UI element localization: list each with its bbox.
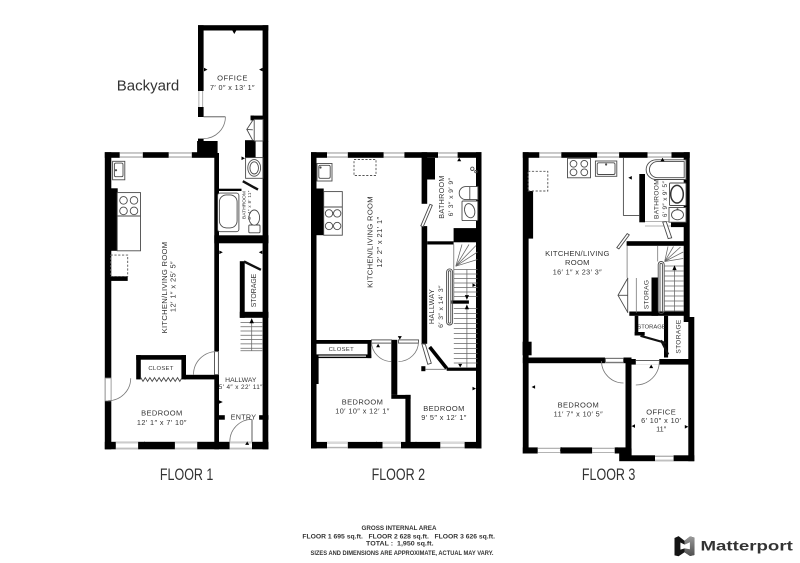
svg-text:SIZES AND DIMENSIONS ARE APPRO: SIZES AND DIMENSIONS ARE APPROXIMATE, AC… [311, 550, 494, 557]
svg-text:FLOOR 1 695 sq.ft. FLOOR 2 6: FLOOR 1 695 sq.ft. FLOOR 2 628 sq.ft. FL… [302, 533, 495, 540]
svg-text:6′ 3″ x 9′ 9″: 6′ 3″ x 9′ 9″ [448, 177, 455, 216]
svg-text:STORAGE: STORAGE [676, 319, 683, 354]
svg-text:TOTAL : 1,950 sq.ft.: TOTAL : 1,950 sq.ft. [366, 541, 434, 548]
svg-text:10′ 10″ x 12′ 1″: 10′ 10″ x 12′ 1″ [335, 406, 389, 415]
svg-text:5′ 4″ x 8′ 11″: 5′ 4″ x 8′ 11″ [247, 190, 252, 219]
svg-text:BEDROOM: BEDROOM [342, 397, 384, 406]
svg-text:12′ 1″ x 7′ 10″: 12′ 1″ x 7′ 10″ [137, 418, 187, 427]
svg-text:Backyard: Backyard [117, 78, 180, 95]
svg-text:HALLWAY: HALLWAY [427, 289, 436, 324]
svg-text:12′ 1″ x 25′ 5″: 12′ 1″ x 25′ 5″ [169, 261, 178, 312]
svg-text:12′ 2″ x 21′ 1″: 12′ 2″ x 21′ 1″ [375, 216, 384, 267]
svg-text:ROOM: ROOM [565, 258, 590, 267]
svg-text:GROSS INTERNAL AREA: GROSS INTERNAL AREA [362, 525, 437, 532]
svg-text:STORAGE: STORAGE [637, 325, 665, 331]
svg-text:BEDROOM: BEDROOM [141, 408, 183, 417]
svg-text:STORAGE: STORAGE [251, 273, 258, 307]
svg-text:Matterport: Matterport [701, 537, 794, 553]
svg-text:BATHROOM: BATHROOM [653, 179, 660, 219]
svg-text:KITCHEN/LIVING ROOM: KITCHEN/LIVING ROOM [160, 242, 169, 334]
svg-text:KITCHEN/LIVING ROOM: KITCHEN/LIVING ROOM [366, 196, 375, 288]
svg-text:CLOSET: CLOSET [329, 347, 354, 353]
svg-text:6′ 3″ x 14′ 3″: 6′ 3″ x 14′ 3″ [438, 285, 445, 328]
svg-text:OFFICE: OFFICE [217, 74, 248, 83]
svg-text:BEDROOM: BEDROOM [423, 404, 465, 413]
svg-text:ENTRY: ENTRY [231, 413, 257, 422]
svg-text:6′ 9″ x 9′ 5″: 6′ 9″ x 9′ 5″ [662, 181, 669, 218]
svg-text:16′ 1″ x 23′ 3″: 16′ 1″ x 23′ 3″ [553, 267, 602, 276]
svg-text:FLOOR 1: FLOOR 1 [160, 466, 214, 484]
svg-text:9′ 5″ x 12′ 1″: 9′ 5″ x 12′ 1″ [421, 413, 467, 422]
svg-text:7′ 0″ x 13′ 1″: 7′ 0″ x 13′ 1″ [210, 83, 255, 92]
svg-text:11′ 7″ x 10′ 5″: 11′ 7″ x 10′ 5″ [554, 410, 603, 419]
svg-text:FLOOR 3: FLOOR 3 [582, 466, 636, 484]
svg-text:BATHROOM: BATHROOM [437, 175, 446, 218]
svg-text:CLOSET: CLOSET [148, 366, 173, 372]
svg-text:KITCHEN/LIVING: KITCHEN/LIVING [545, 249, 610, 258]
svg-text:11″: 11″ [656, 425, 667, 434]
svg-text:STORAG: STORAG [644, 280, 651, 310]
svg-text:5′ 4″ x 22′ 11″: 5′ 4″ x 22′ 11″ [219, 384, 263, 391]
svg-text:FLOOR 2: FLOOR 2 [372, 466, 426, 484]
svg-text:BEDROOM: BEDROOM [558, 401, 600, 410]
